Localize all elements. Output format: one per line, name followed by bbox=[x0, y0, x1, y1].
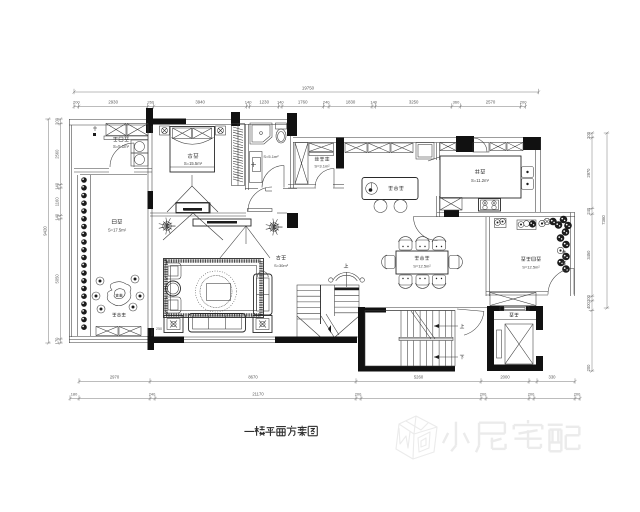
svg-text:240: 240 bbox=[149, 392, 156, 397]
svg-text:200: 200 bbox=[480, 392, 487, 397]
svg-text:21170: 21170 bbox=[252, 392, 264, 397]
svg-text:1160: 1160 bbox=[55, 197, 60, 207]
svg-text:360: 360 bbox=[453, 100, 460, 105]
svg-text:2560: 2560 bbox=[55, 149, 60, 159]
svg-text:5050: 5050 bbox=[55, 274, 60, 284]
svg-text:S=5.1m²: S=5.1m² bbox=[263, 154, 279, 159]
svg-text:200: 200 bbox=[73, 100, 80, 105]
svg-text:140: 140 bbox=[370, 100, 377, 105]
svg-text:260: 260 bbox=[147, 100, 154, 105]
svg-text:200: 200 bbox=[586, 364, 591, 372]
svg-text:200: 200 bbox=[528, 392, 535, 397]
svg-text:9420: 9420 bbox=[43, 226, 48, 236]
svg-text:19750: 19750 bbox=[302, 86, 315, 91]
svg-text:170: 170 bbox=[55, 337, 60, 345]
svg-text:200: 200 bbox=[520, 100, 527, 105]
svg-text:7360: 7360 bbox=[601, 215, 606, 225]
svg-text:3250: 3250 bbox=[409, 100, 419, 105]
svg-text:3940: 3940 bbox=[195, 100, 205, 105]
svg-text:200: 200 bbox=[574, 392, 581, 397]
svg-text:S=11.2m²: S=11.2m² bbox=[471, 178, 490, 183]
svg-text:S=15.5m²: S=15.5m² bbox=[184, 161, 203, 166]
svg-text:200: 200 bbox=[355, 392, 362, 397]
svg-text:1760: 1760 bbox=[298, 100, 308, 105]
svg-text:1230: 1230 bbox=[259, 100, 269, 105]
svg-text:250: 250 bbox=[156, 327, 162, 331]
svg-text:3450: 3450 bbox=[586, 250, 591, 260]
svg-text:240: 240 bbox=[586, 207, 591, 215]
svg-text:200: 200 bbox=[586, 131, 591, 139]
svg-text:S=30m²: S=30m² bbox=[274, 263, 289, 268]
svg-text:200: 200 bbox=[586, 294, 591, 302]
svg-text:2970: 2970 bbox=[110, 375, 120, 380]
svg-text:2970: 2970 bbox=[586, 168, 591, 178]
svg-text:330: 330 bbox=[549, 375, 557, 380]
svg-text:400: 400 bbox=[586, 301, 591, 309]
svg-text:2570: 2570 bbox=[486, 100, 496, 105]
svg-text:8670: 8670 bbox=[248, 375, 258, 380]
svg-text:240: 240 bbox=[323, 100, 330, 105]
svg-text:5260: 5260 bbox=[414, 375, 424, 380]
svg-text:140: 140 bbox=[55, 182, 60, 190]
svg-text:S=17.5m²: S=17.5m² bbox=[108, 228, 127, 233]
svg-text:S=12.5m²: S=12.5m² bbox=[522, 265, 540, 270]
svg-text:S=12.5m²: S=12.5m² bbox=[413, 264, 431, 269]
svg-text:180: 180 bbox=[71, 392, 78, 397]
svg-text:140: 140 bbox=[245, 100, 252, 105]
svg-text:2000: 2000 bbox=[500, 375, 510, 380]
svg-text:200: 200 bbox=[55, 117, 60, 125]
svg-text:1830: 1830 bbox=[346, 100, 356, 105]
svg-text:2930: 2930 bbox=[108, 100, 118, 105]
svg-text:S=3.1m²: S=3.1m² bbox=[314, 164, 330, 169]
svg-text:140: 140 bbox=[55, 213, 60, 221]
svg-text:140: 140 bbox=[277, 100, 284, 105]
